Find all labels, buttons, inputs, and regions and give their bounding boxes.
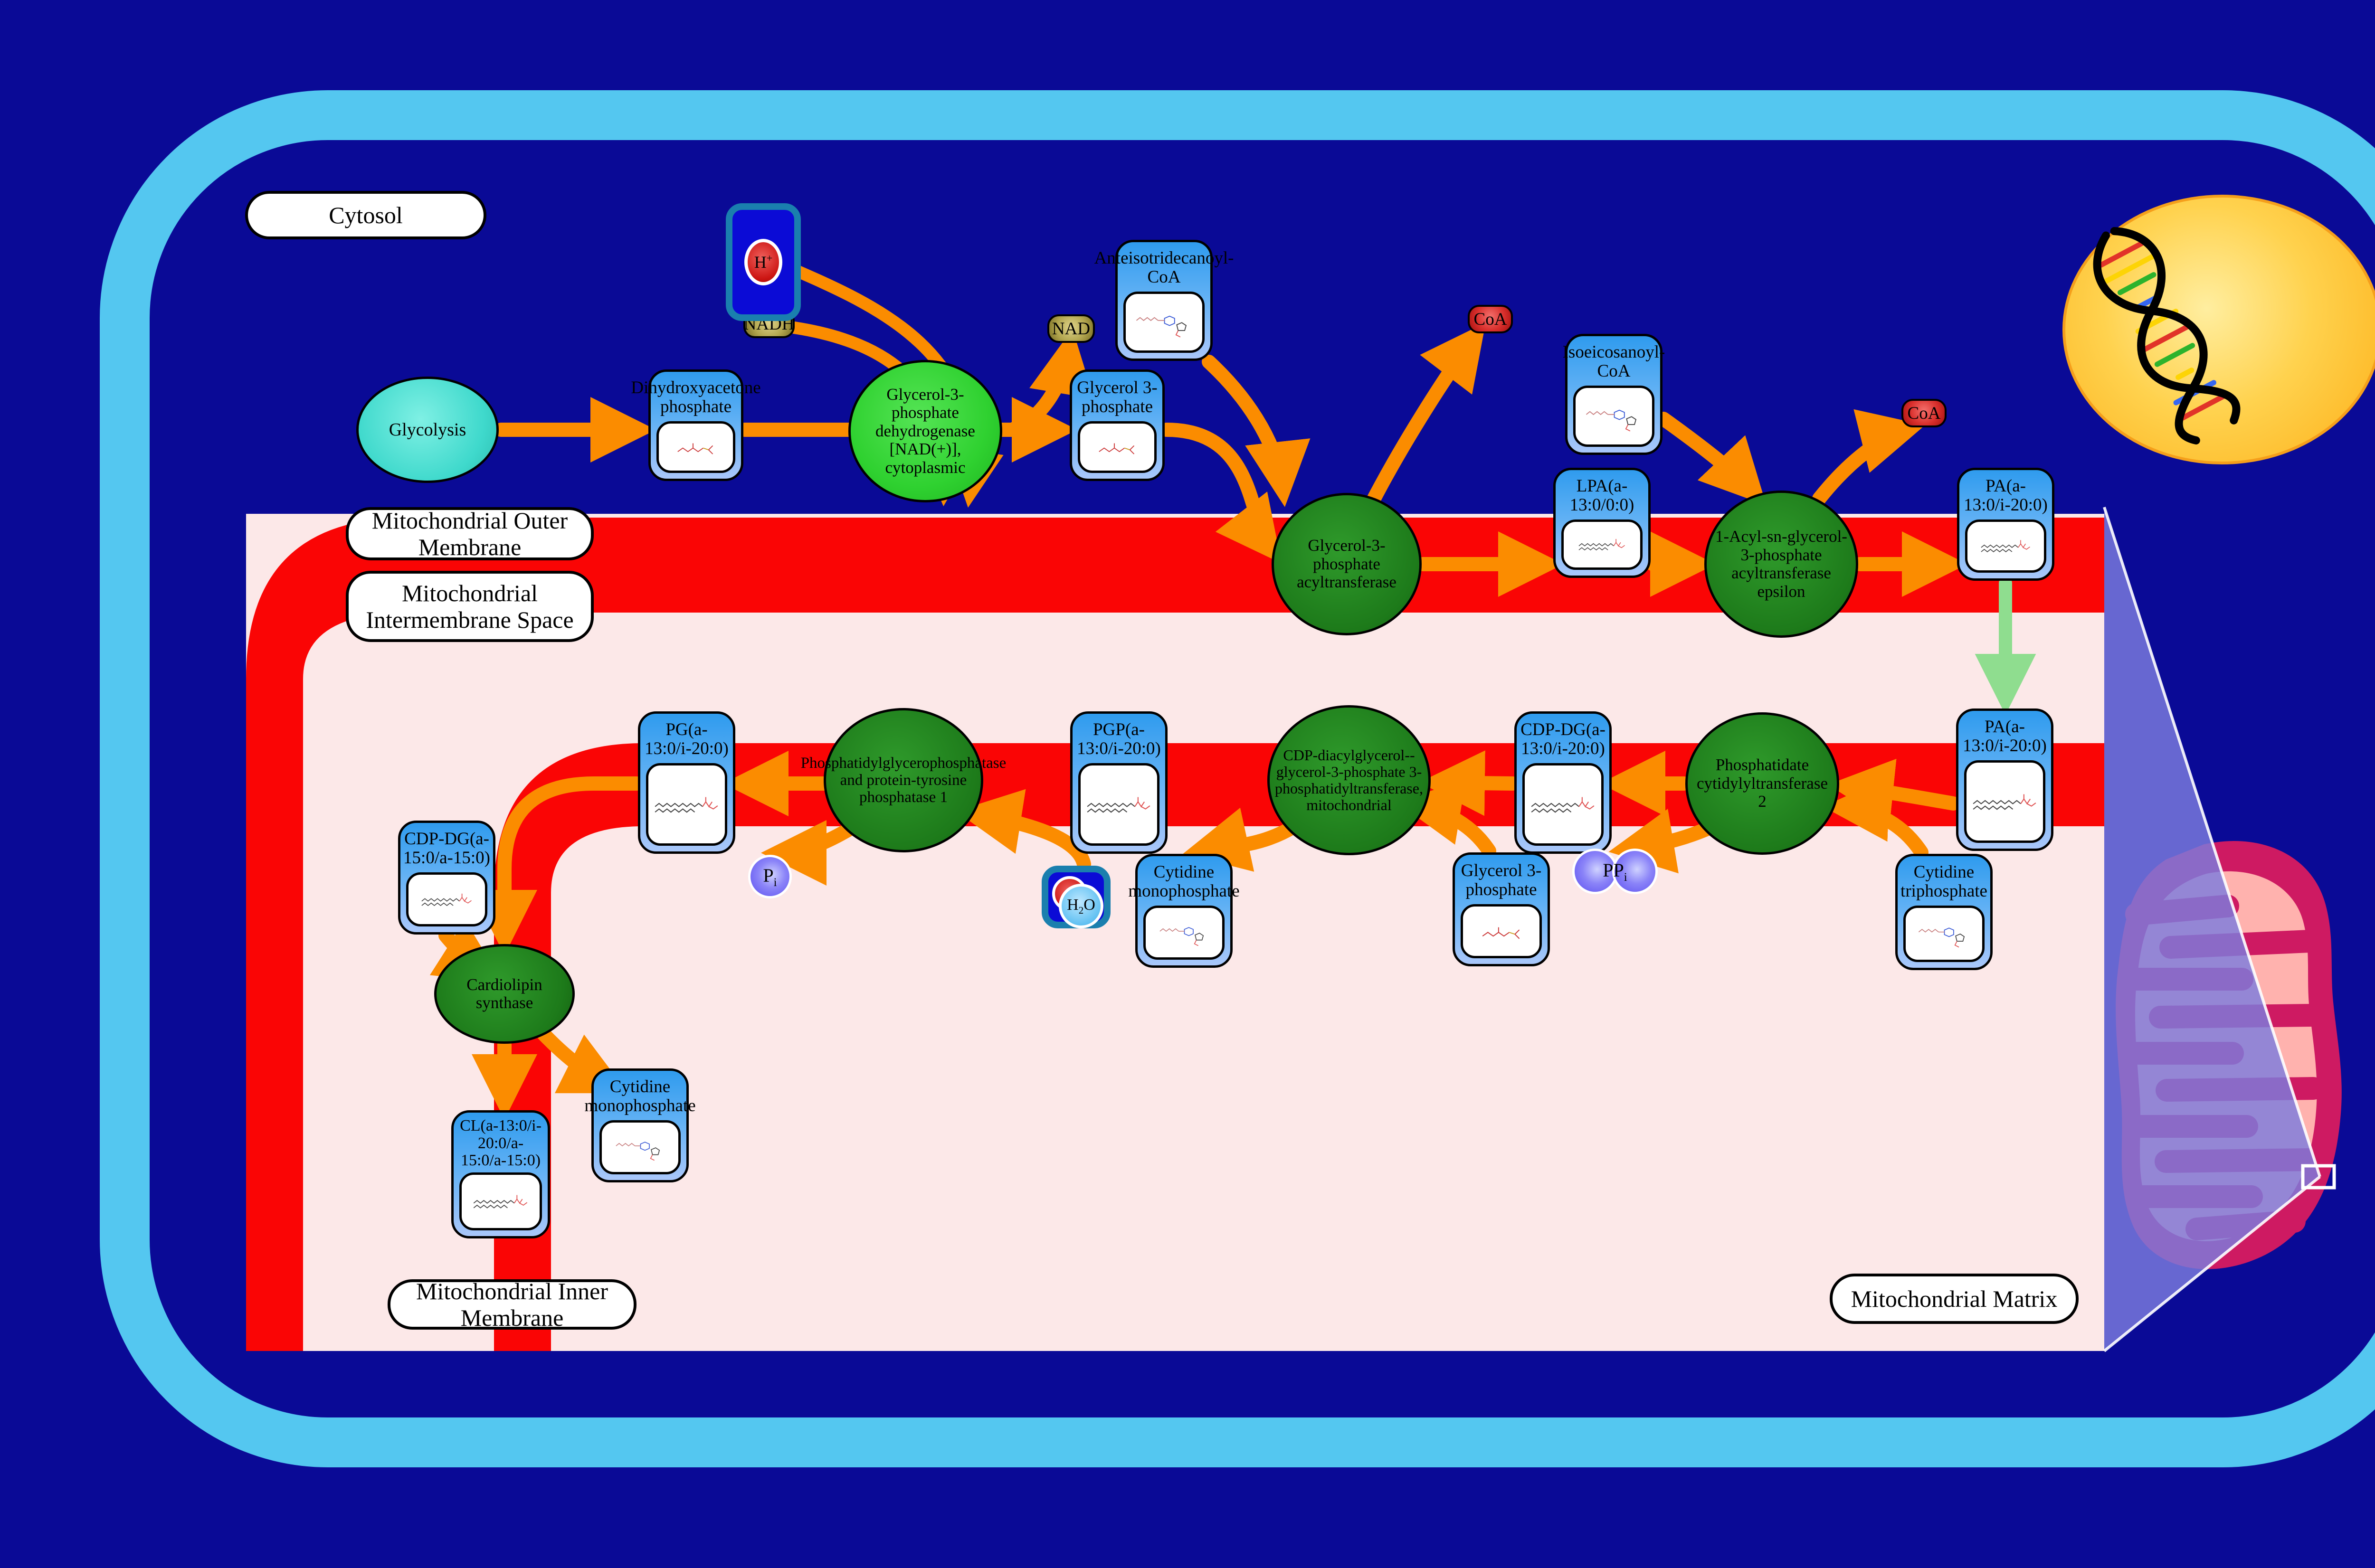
metabolite-lpa[interactable]: LPA(a-13:0/0:0) xyxy=(1553,468,1651,578)
region-label-inner-membrane: Mitochondrial Inner Membrane xyxy=(388,1279,636,1330)
metabolite-anteisotridecanoyl-coa[interactable]: Anteisotridecanoyl-CoA xyxy=(1115,240,1213,361)
water-icon[interactable]: H2O xyxy=(1042,866,1111,928)
cofactor-nad[interactable]: NAD xyxy=(1047,314,1095,343)
region-label-outer-membrane: Mitochondrial Outer Membrane xyxy=(346,507,594,560)
metabolite-pa-outer[interactable]: PA(a-13:0/i-20:0) xyxy=(1957,468,2054,581)
region-label-cytosol: Cytosol xyxy=(245,191,486,239)
enzyme-pgps-mitochondrial[interactable]: CDP-diacylglycerol--glycerol-3-phosphate… xyxy=(1267,705,1431,855)
metabolite-cmp-left[interactable]: Cytidine monophosphate xyxy=(591,1068,689,1182)
enzyme-gpat[interactable]: Glycerol-3-phosphate acyltransferase xyxy=(1272,493,1422,635)
enzyme-pct2[interactable]: Phosphatidate cytidylyltransferase 2 xyxy=(1685,712,1839,855)
pathway-diagram: Cytosol Mitochondrial Outer Membrane Mit… xyxy=(0,0,2375,1568)
dna-helix-icon xyxy=(2083,219,2242,445)
metabolite-pg[interactable]: PG(a-13:0/i-20:0) xyxy=(638,711,735,854)
metabolite-cmp-mid[interactable]: Cytidine monophosphate xyxy=(1135,854,1233,968)
metabolite-cardiolipin[interactable]: CL(a-13:0/i-20:0/a-15:0/a-15:0) xyxy=(451,1110,550,1238)
metabolite-ctp[interactable]: Cytidine triphosphate xyxy=(1895,854,1993,970)
glycolysis-node[interactable]: Glycolysis xyxy=(356,377,499,483)
metabolite-isoeicosanoyl-coa[interactable]: Isoeicosanoyl-CoA xyxy=(1565,334,1662,455)
metabolite-cdp-dg-2[interactable]: CDP-DG(a-15:0/a-15:0) xyxy=(398,821,495,935)
pyrophosphate-ppi[interactable]: PPi xyxy=(1572,848,1658,895)
metabolite-cdp-dg-1[interactable]: CDP-DG(a-13:0/i-20:0) xyxy=(1514,711,1612,854)
metabolite-pgp[interactable]: PGP(a-13:0/i-20:0) xyxy=(1070,711,1168,854)
enzyme-cardiolipin-synthase[interactable]: Cardiolipin synthase xyxy=(434,944,575,1044)
enzyme-ptpmt1[interactable]: Phosphatidylglycerophosphatase and prote… xyxy=(824,708,983,852)
enzyme-gpd-cytoplasmic[interactable]: Glycerol-3-phosphate dehydrogenase [NAD(… xyxy=(848,360,1002,502)
cofactor-coa-2[interactable]: CoA xyxy=(1901,399,1947,427)
metabolite-dhap[interactable]: Dihydroxyacetone phosphate xyxy=(648,369,743,481)
region-label-matrix: Mitochondrial Matrix xyxy=(1830,1274,2079,1324)
h2o-ball: H2O xyxy=(1059,884,1103,928)
phosphate-pi[interactable]: Pi xyxy=(748,855,792,898)
proton-icon[interactable]: H+ xyxy=(726,203,801,321)
cofactor-coa-1[interactable]: CoA xyxy=(1468,305,1513,333)
h-plus-ball: H+ xyxy=(744,239,782,285)
enzyme-agpat-epsilon[interactable]: 1-Acyl-sn-glycerol-3-phosphate acyltrans… xyxy=(1704,491,1858,638)
metabolite-pa-inner[interactable]: PA(a-13:0/i-20:0) xyxy=(1956,708,2053,851)
metabolite-g3p-cytosol[interactable]: Glycerol 3-phosphate xyxy=(1070,369,1165,481)
metabolite-g3p-matrix[interactable]: Glycerol 3-phosphate xyxy=(1453,852,1550,966)
region-label-intermembrane-space: Mitochondrial Intermembrane Space xyxy=(346,571,594,642)
